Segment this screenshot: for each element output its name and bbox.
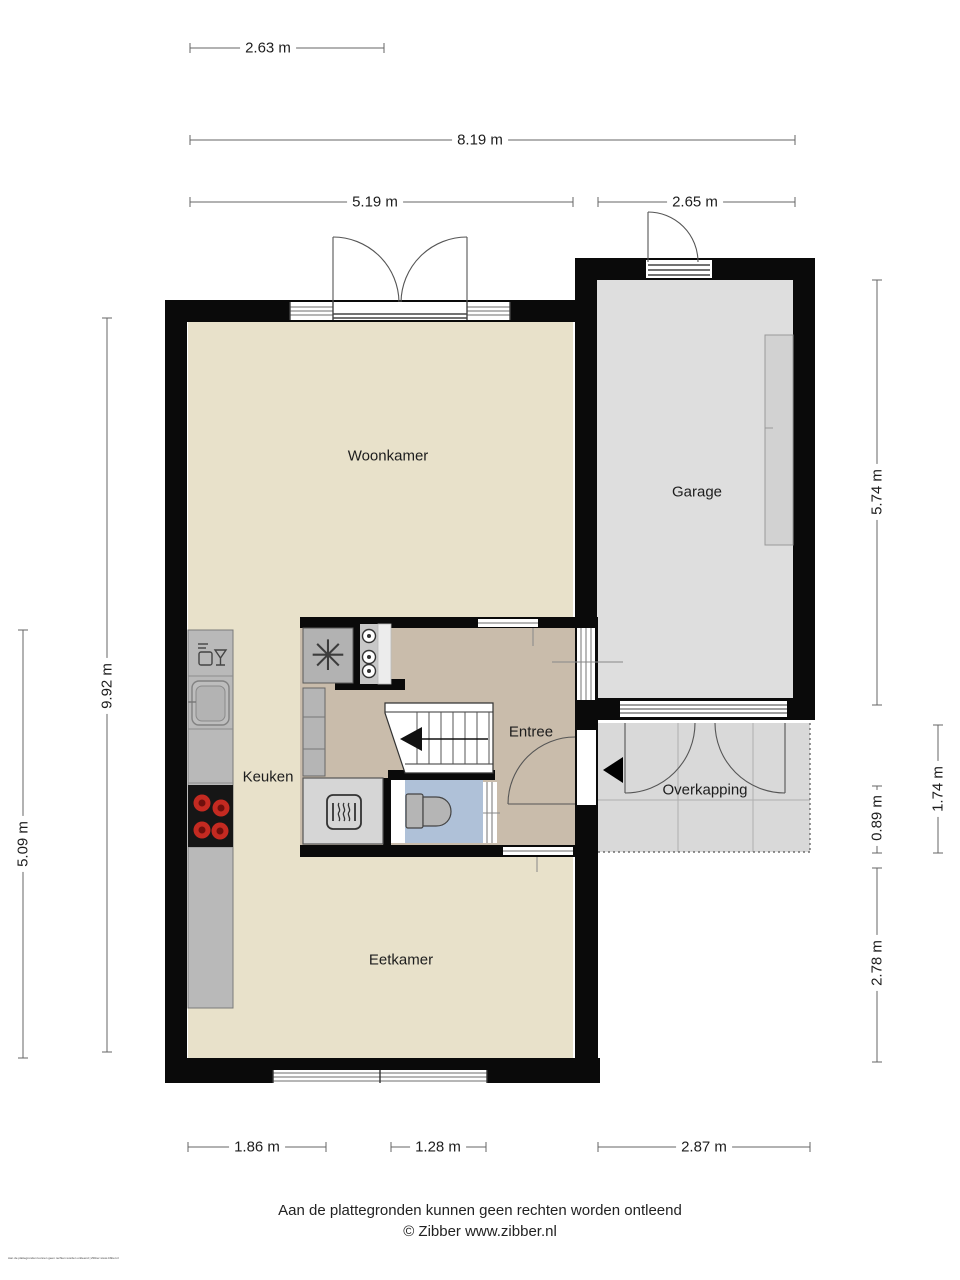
room-label-woonkamer: Woonkamer <box>348 448 429 465</box>
dim-label-1-74: 1.74 m <box>930 761 947 817</box>
room-label-eetkamer: Eetkamer <box>369 952 433 969</box>
dim-label-8-19: 8.19 m <box>452 132 508 149</box>
dim-label-9-92: 9.92 m <box>99 658 116 714</box>
dim-label-5-74: 5.74 m <box>869 464 886 520</box>
staircase <box>385 703 493 773</box>
dim-label-1-28: 1.28 m <box>410 1139 466 1156</box>
wall-garage-right <box>793 258 815 720</box>
meter-door <box>378 624 391 684</box>
sink-icon <box>188 681 229 725</box>
dim-label-1-86: 1.86 m <box>229 1139 285 1156</box>
closet-shelf-strip <box>303 688 325 776</box>
dim-label-5-19: 5.19 m <box>347 194 403 211</box>
room-label-entree: Entree <box>509 724 553 741</box>
dim-label-2-63: 2.63 m <box>240 40 296 57</box>
floor-plan-drawing <box>0 0 960 1280</box>
garage-cabinet <box>765 335 793 545</box>
wall-toilet-left-stub <box>383 778 391 845</box>
room-label-garage: Garage <box>672 484 722 501</box>
dim-label-2-87: 2.87 m <box>676 1139 732 1156</box>
cooktop-icon <box>188 785 233 847</box>
room-label-overkapping: Overkapping <box>662 782 747 799</box>
toilet-door-opening <box>391 780 405 843</box>
toilet-icon <box>406 794 451 828</box>
dim-label-0-89: 0.89 m <box>869 790 886 846</box>
living-room-double-door <box>333 237 467 302</box>
dim-label-5-09: 5.09 m <box>15 816 32 872</box>
floors <box>188 280 810 1058</box>
footer-micro-text: Aan de plattegronden kunnen geen rechten… <box>8 1256 119 1260</box>
room-label-keuken: Keuken <box>243 769 294 786</box>
footer-disclaimer: Aan de plattegronden kunnen geen rechten… <box>0 1202 960 1219</box>
dim-label-2-65: 2.65 m <box>667 194 723 211</box>
dim-label-2-78: 2.78 m <box>869 935 886 991</box>
kitchen-counter <box>188 630 233 1008</box>
wall-left <box>165 300 187 1083</box>
boiler-closet <box>303 778 383 844</box>
footer-copyright: © Zibber www.zibber.nl <box>0 1223 960 1240</box>
ventilation-fan-icon: ✳ <box>310 635 345 677</box>
floor-plan-canvas: ✳ Woonkamer Garage Keuken Entree Overkap… <box>0 0 960 1280</box>
front-door-opening <box>577 730 596 805</box>
garage-door-swing <box>648 212 698 262</box>
toilet-room <box>405 780 483 843</box>
